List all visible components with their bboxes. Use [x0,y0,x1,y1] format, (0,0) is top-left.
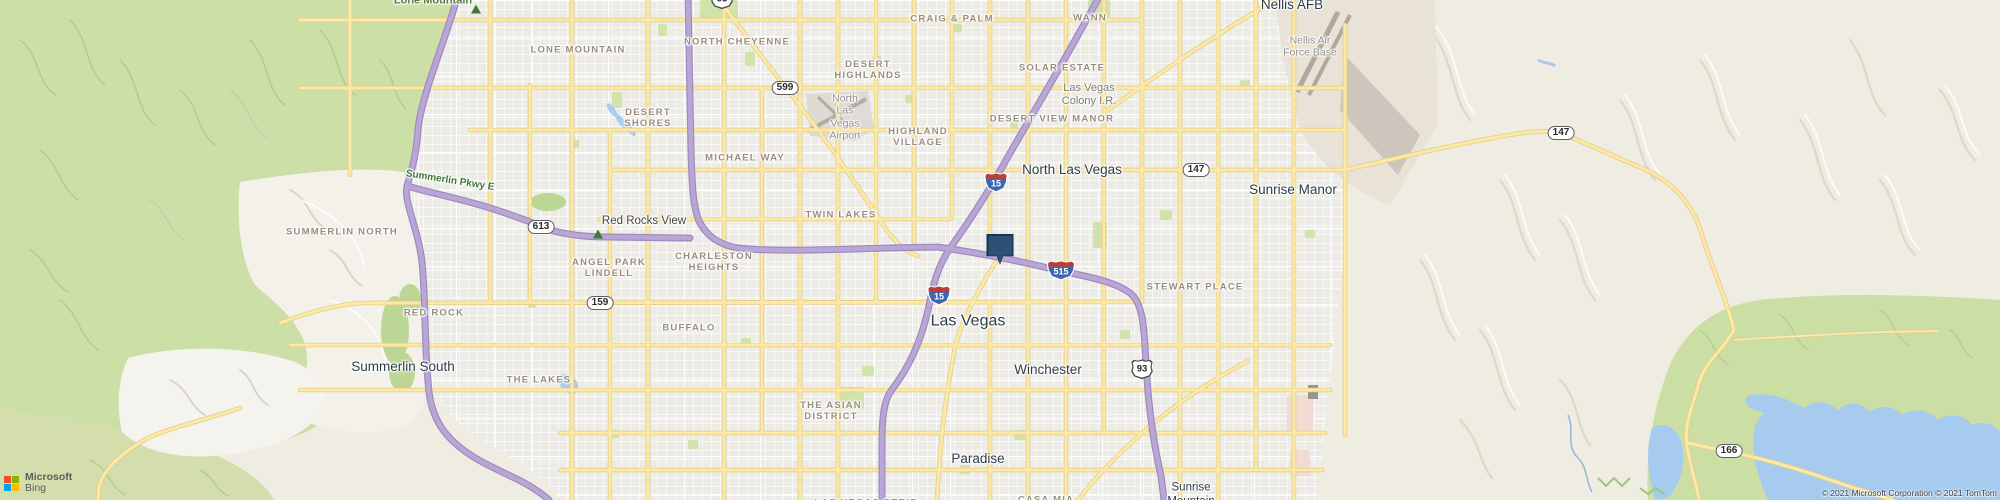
bing-logo-text: Microsoft Bing [25,472,72,494]
map-label: WANN [1073,12,1107,23]
route-shield-147: 147 [1548,126,1575,140]
route-shield-95: 95 [710,0,734,10]
map-label: SUMMERLIN NORTH [286,226,398,237]
map-label: DESERT VIEW MANOR [990,113,1114,124]
map-label: ANGEL PARK LINDELL [572,257,646,279]
map-label: Las Vegas Colony I.R. [1062,82,1116,108]
map-label: CRAIG & PALM [910,13,993,24]
map-label: Nellis AFB [1261,0,1323,13]
route-shield-15: 15 [984,172,1008,193]
map-label: Sunrise Mountain [1167,481,1214,500]
map-label: Summerlin Pkwy E [405,168,495,194]
map-label: MICHAEL WAY [705,152,785,163]
map-label: SOLAR ESTATE [1019,62,1105,73]
map-label: Summerlin South [351,359,455,375]
red-rocks-view-peak-icon [593,230,603,239]
map-label: TWIN LAKES [805,209,876,220]
map-label: Paradise [951,451,1004,467]
map-label: CASA MIA [1018,494,1074,500]
microsoft-logo-icon [4,476,19,491]
map-pin-fill [988,235,1012,263]
bing-logo[interactable]: Microsoft Bing [4,472,72,494]
map-label: Las Vegas [931,313,1006,332]
map-label: North Las Vegas [1022,162,1122,178]
map-label: Sunrise Manor [1249,182,1337,198]
map-label: Lone Mountain [394,0,472,7]
lone-mountain-peak-icon [471,5,481,14]
map-label: HIGHLAND VILLAGE [888,126,948,148]
map-label: DESERT SHORES [624,107,671,129]
copyright-notice: © 2021 Microsoft Corporation © 2021 TomT… [1822,488,1997,498]
route-shield-515: 515 [1047,260,1076,281]
route-shield-93: 93 [1130,359,1154,380]
map-label: CHARLESTON HEIGHTS [675,251,753,273]
map-pin-marker[interactable] [987,234,1014,265]
map-label: LONE MOUNTAIN [530,44,625,55]
map-label: THE LAKES [507,374,572,385]
map-label: North Las Vegas Airport [830,92,861,142]
route-shield-15: 15 [927,285,951,306]
map-label: BUFFALO [662,322,715,333]
route-shield-613: 613 [528,220,555,234]
map-label: Red Rocks View [602,215,686,229]
brand-line-2: Bing [25,483,72,494]
route-shield-166: 166 [1716,444,1743,458]
map-label: STEWART PLACE [1147,281,1244,292]
map-overlay: Lone MountainLONE MOUNTAINNORTH CHEYENNE… [0,0,2000,500]
route-shield-147: 147 [1183,163,1210,177]
map-label: Winchester [1014,362,1082,378]
map-label: RED ROCK [404,307,464,318]
map-canvas[interactable]: Lone MountainLONE MOUNTAINNORTH CHEYENNE… [0,0,2000,500]
map-label: NORTH CHEYENNE [684,36,790,47]
map-label: THE ASIAN DISTRICT [800,400,862,422]
map-label: DESERT HIGHLANDS [834,59,901,81]
map-label: Nellis Air Force Base [1283,35,1337,60]
route-shield-599: 599 [772,81,799,95]
route-shield-159: 159 [587,296,614,310]
